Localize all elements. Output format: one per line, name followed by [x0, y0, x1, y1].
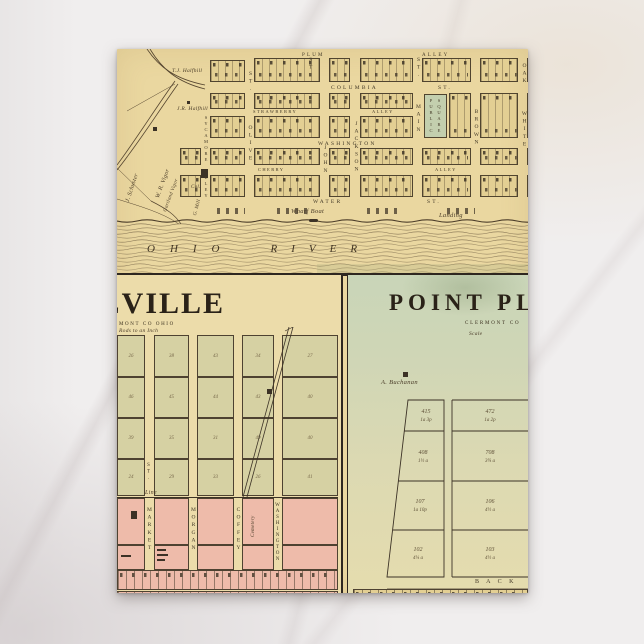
river-name-ohio: OHIO [147, 243, 235, 255]
lot-label: 106 4½ a [470, 498, 510, 515]
owner-label: J.R. Halfhill [177, 107, 208, 113]
lot-area: 1a 2p [470, 417, 510, 425]
city-block [480, 148, 518, 165]
lot-cell-pink [117, 498, 145, 545]
river-name: OHIO RIVER [147, 243, 371, 255]
postcard: PUBLIC SQUARE PLUM ALLEY COLUMBIA ST. ST… [117, 49, 528, 593]
river-name-river: RIVER [271, 243, 372, 255]
lot-area: 1a 3p [406, 417, 446, 425]
street-label-oak: OAK [521, 63, 527, 86]
city-block [329, 58, 350, 82]
city-block [329, 148, 350, 165]
street-label-market: MARKET [146, 507, 152, 553]
small-lots-strip [117, 591, 338, 593]
panel-divider [341, 273, 343, 593]
street-label-john: JOHN [322, 145, 328, 175]
city-block [360, 148, 413, 165]
city-block [422, 175, 471, 197]
street-label-alley-top: ALLEY [422, 53, 449, 58]
street-label-columbia-st: ST. [438, 86, 452, 92]
city-block [329, 116, 350, 138]
lot-number: 103 [470, 546, 510, 555]
lot-label: 102 4¼ a [398, 546, 438, 563]
street-label-mid-alley: ALLEY [435, 168, 457, 173]
lot-cell-pink [282, 545, 338, 570]
lot-cell-pink [282, 498, 338, 545]
city-block [254, 148, 320, 165]
panel-point-pleasant: POINT PLEASANT CLERMONT CO Scale A. Buch… [348, 275, 528, 593]
street-label-brown: BROWN [473, 109, 479, 147]
landing-label: Landing [439, 213, 463, 220]
street-label-olive: OLIVE [247, 125, 253, 163]
small-lots-strip [117, 570, 338, 590]
street-label-morgan: MORGAN [190, 507, 196, 553]
city-block [527, 175, 528, 197]
lot-label: 107 1a 10p [400, 498, 440, 515]
panel-pp-subtitle: CLERMONT CO [465, 321, 520, 326]
city-block [422, 58, 471, 82]
city-block [329, 175, 350, 197]
building-mark [157, 554, 168, 556]
lot-number: 708 [470, 449, 510, 458]
lot-cell-pink [197, 545, 234, 570]
lot-area: 4½ a [470, 507, 510, 515]
public-square-label: PUBLIC [428, 98, 433, 134]
street-label-coffey: COFFEY [235, 507, 241, 553]
lot-number: 415 [406, 408, 446, 417]
lot-number: 106 [470, 498, 510, 507]
panel-pp-title: POINT PLEASANT [389, 291, 528, 314]
city-block [360, 93, 413, 109]
city-block [329, 93, 350, 109]
city-block [254, 175, 320, 197]
street-label-jackson: JACKSON [353, 121, 359, 174]
building-mark [121, 555, 131, 557]
lot-area: 3¾ a [470, 458, 510, 466]
lot-area: 4¼ a [398, 555, 438, 563]
cemetery-label: Cemetery [251, 515, 256, 537]
lot-number: 472 [470, 408, 510, 417]
street-label-strawberry-alley: ALLEY [372, 110, 394, 115]
city-block [254, 116, 320, 138]
lot-label: 103 4½ a [470, 546, 510, 563]
panel-pp-scale: Scale [469, 332, 482, 338]
marble-surface: { "postcard": { "top_map": { "streets": … [0, 0, 644, 644]
street-label-columbia: COLUMBIA [331, 86, 378, 92]
lot-area: 1a 10p [400, 507, 440, 515]
owner-label: T.J. Halfhill [172, 69, 202, 75]
lot-number: 408 [403, 449, 443, 458]
street-label-strawberry: STRAWBERRY [253, 110, 297, 115]
lot-label: 708 3¾ a [470, 449, 510, 466]
city-block [449, 93, 471, 138]
street-label-olive-st: ST. [247, 71, 253, 94]
city-block [422, 148, 471, 165]
city-block [480, 58, 518, 82]
public-square-label: SQUARE [436, 98, 441, 134]
street-label-st: ST. [307, 57, 313, 80]
lot-cell-pink [242, 498, 274, 545]
country-roads [117, 49, 247, 224]
street-label-washington-s: WASHINGTON [275, 503, 280, 563]
building-mark [157, 549, 166, 551]
street-label-water: WATER [313, 200, 342, 206]
lot-number: 107 [400, 498, 440, 507]
panel-neville: NEVILLE MONT CO OHIO Rods to an Inch 26 … [117, 275, 341, 593]
panel-neville-title: NEVILLE [117, 289, 225, 319]
lot-cell-pink [154, 498, 189, 545]
lot-cell-pink [242, 545, 274, 570]
city-block [527, 148, 528, 165]
city-block [254, 93, 320, 109]
street-label-sycamore-alley: SYCAMORE ALLEY [203, 115, 208, 199]
lot-area: 1½ a [403, 458, 443, 466]
owner-label: Cal. [191, 185, 201, 190]
city-block [360, 116, 413, 138]
lot-label: 415 1a 3p [406, 408, 446, 425]
wharf-boat-label: Wharf Boat [291, 209, 324, 216]
lot-area: 4½ a [470, 555, 510, 563]
street-label-main: MAIN [415, 104, 421, 134]
top-map: PUBLIC SQUARE PLUM ALLEY COLUMBIA ST. ST… [117, 49, 528, 275]
wharf-boat-mark [309, 219, 318, 222]
public-square: PUBLIC SQUARE [424, 94, 447, 138]
city-block [360, 175, 413, 197]
lot-label: 472 1a 2p [470, 408, 510, 425]
building-mark [157, 559, 165, 561]
street-label-main-st: ST. [415, 57, 421, 80]
street-label-water-st: ST. [427, 200, 441, 206]
diagonal-road [117, 327, 338, 499]
street-label-cherry: CHERRY [258, 168, 284, 173]
building-mark [131, 511, 137, 519]
lot-cell-pink [117, 545, 145, 570]
street-label-white: WHITE [521, 111, 527, 149]
lot-cell-pink [197, 498, 234, 545]
lot-label: 408 1½ a [403, 449, 443, 466]
city-block [360, 58, 413, 82]
street-label-back: B A C K [475, 579, 517, 585]
ohio-river: Wharf Boat Landing OHIO RIVER [117, 206, 528, 275]
small-lots-strip [353, 589, 528, 593]
lot-number: 102 [398, 546, 438, 555]
city-block [480, 93, 518, 138]
city-block [480, 175, 518, 197]
